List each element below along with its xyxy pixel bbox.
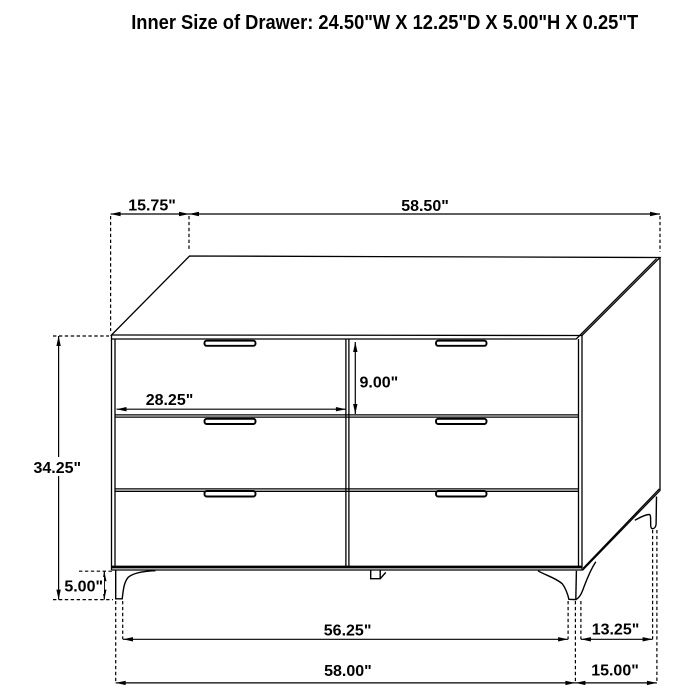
- svg-text:13.25": 13.25": [592, 622, 640, 639]
- svg-text:28.25": 28.25": [146, 392, 194, 409]
- svg-text:58.50": 58.50": [401, 198, 449, 215]
- svg-text:56.25": 56.25": [324, 623, 372, 640]
- svg-text:5.00": 5.00": [64, 579, 103, 596]
- svg-text:9.00": 9.00": [360, 375, 399, 392]
- svg-text:15.75": 15.75": [128, 198, 176, 215]
- svg-text:58.00": 58.00": [324, 663, 372, 680]
- svg-text:15.00": 15.00": [591, 663, 639, 680]
- svg-text:34.25": 34.25": [33, 460, 81, 477]
- svg-text:Inner Size of Drawer: 24.50"W: Inner Size of Drawer: 24.50"W X 12.25"D …: [131, 12, 638, 34]
